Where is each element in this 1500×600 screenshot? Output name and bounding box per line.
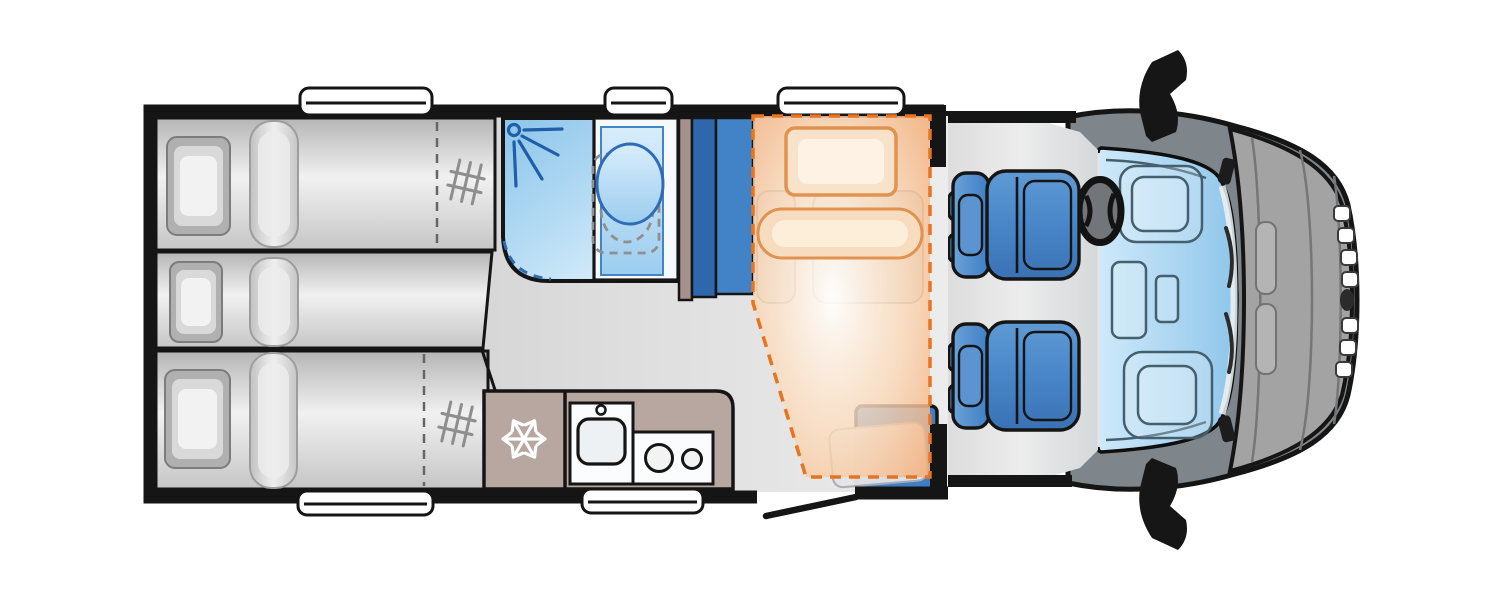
duvet-roll xyxy=(250,353,297,488)
window-top-bedroom xyxy=(300,88,432,115)
rear-beds xyxy=(156,118,495,489)
overlay-duvet xyxy=(758,209,922,258)
washbasin xyxy=(597,144,663,224)
pillow xyxy=(170,262,222,342)
pillow xyxy=(167,137,230,235)
duvet-roll xyxy=(250,121,298,247)
tap-icon xyxy=(597,405,606,415)
travel-bench-backrest xyxy=(692,118,716,297)
window-bottom-bedroom xyxy=(298,491,433,515)
pillow xyxy=(165,370,230,468)
mid-section xyxy=(679,118,753,300)
washroom xyxy=(503,118,678,281)
floorplan-svg xyxy=(0,0,1500,600)
motorhome-floorplan xyxy=(0,0,1500,600)
hob-burner-large xyxy=(646,445,673,472)
travel-bench-seat xyxy=(716,118,753,294)
wall-stub-bottom xyxy=(930,424,947,496)
steering-wheel-icon xyxy=(1079,180,1121,243)
window-bottom-kitchen xyxy=(582,489,703,513)
driver-swivel-seat xyxy=(949,171,1079,279)
sink-basin xyxy=(578,419,625,464)
kitchen-block xyxy=(484,391,733,489)
partition-wall xyxy=(679,118,692,300)
passenger-swivel-seat xyxy=(949,322,1079,430)
brand-emblem xyxy=(1340,289,1354,311)
wall-stub-top xyxy=(930,105,946,167)
window-top-washroom xyxy=(605,88,672,115)
overlay-pillow xyxy=(786,128,896,195)
hob-burner-small xyxy=(683,450,702,469)
window-top-dinette xyxy=(778,88,904,115)
duvet-roll xyxy=(250,258,298,346)
